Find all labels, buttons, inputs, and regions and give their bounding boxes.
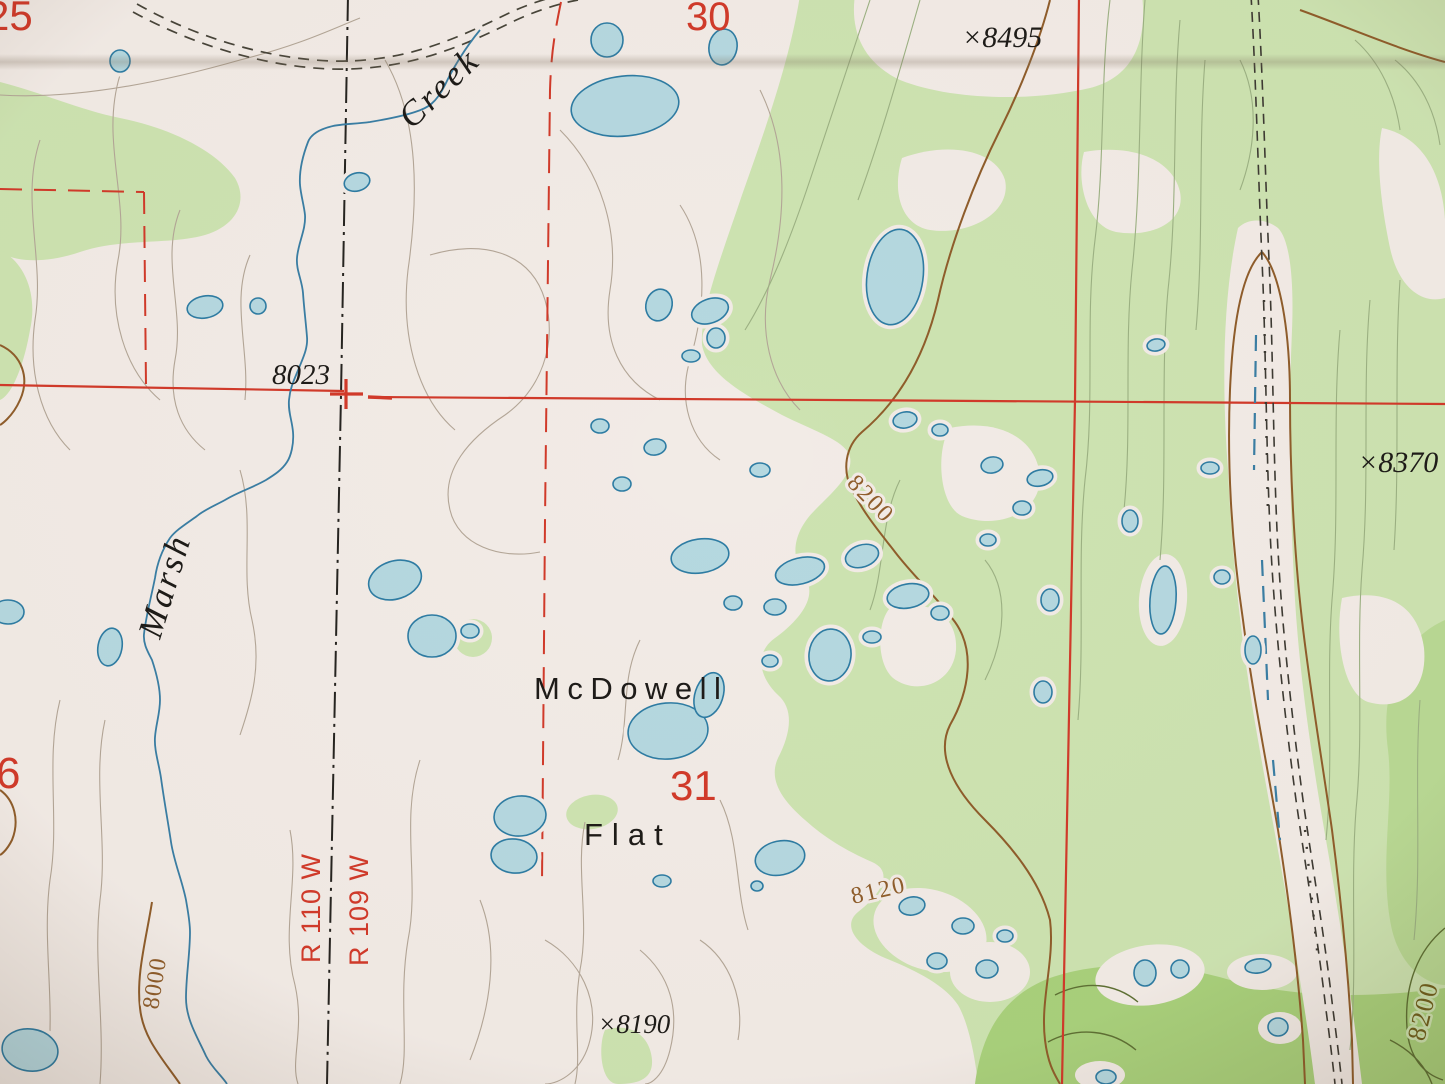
topo-map-photo: 25 30 31 6 ×8495 ×8370 ×8190 8023 Creek …: [0, 0, 1445, 1084]
topo-map-svg: 25 30 31 6 ×8495 ×8370 ×8190 8023 Creek …: [0, 0, 1445, 1084]
photo-vignette: [0, 0, 1445, 1084]
